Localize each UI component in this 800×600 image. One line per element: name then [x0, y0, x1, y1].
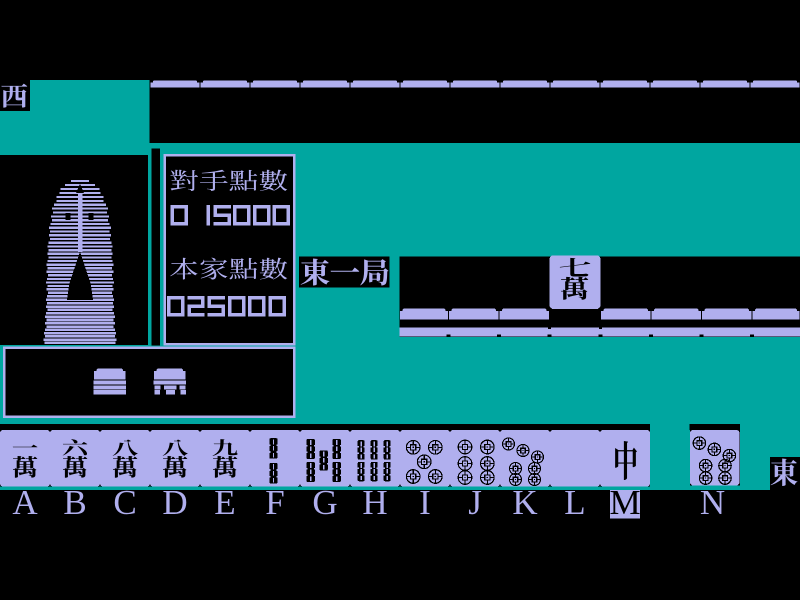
- svg-text:F: F: [265, 483, 284, 522]
- svg-text:E: E: [214, 483, 235, 522]
- svg-text:N: N: [700, 483, 725, 522]
- svg-text:B: B: [63, 483, 86, 522]
- svg-text:D: D: [162, 483, 187, 522]
- svg-text:M: M: [609, 483, 640, 522]
- svg-text:I: I: [419, 483, 431, 522]
- svg-text:K: K: [512, 483, 537, 522]
- svg-text:G: G: [312, 483, 337, 522]
- svg-text:L: L: [564, 483, 585, 522]
- svg-text:J: J: [468, 483, 482, 522]
- svg-text:C: C: [113, 483, 136, 522]
- svg-text:A: A: [12, 483, 38, 522]
- svg-text:H: H: [362, 483, 387, 522]
